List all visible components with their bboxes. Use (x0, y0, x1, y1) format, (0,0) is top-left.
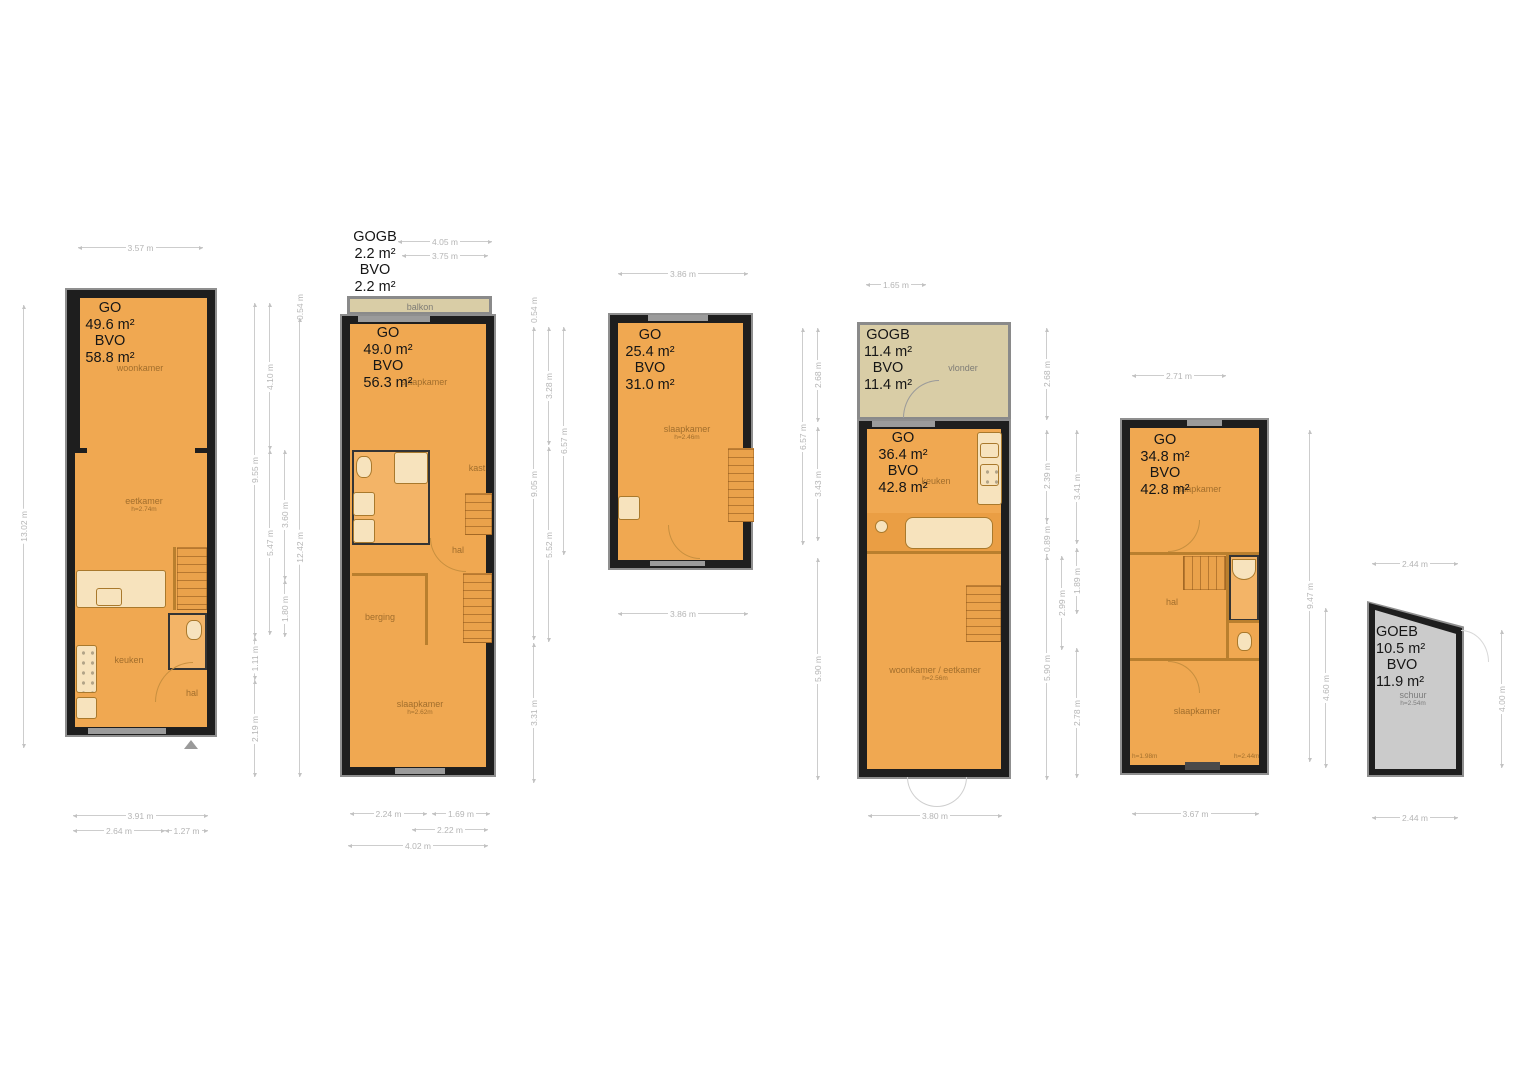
door-arc (907, 777, 937, 807)
toilet-fixture (356, 456, 372, 478)
washer-fixture (353, 519, 375, 543)
room-label: vlonder (948, 363, 978, 373)
dimension: 1.65 m (866, 279, 926, 290)
room-label: balkon (407, 302, 434, 312)
area-label: GO 25.4 m² BVO 31.0 m² (622, 327, 678, 393)
area-label-line: GO (81, 300, 139, 317)
area-label-line: 36.4 m² (875, 447, 931, 464)
area-label-line: GOEB (1376, 624, 1428, 641)
area-label-line: 42.8 m² (875, 480, 931, 497)
area-label: GO 49.0 m² BVO 56.3 m² (360, 325, 416, 391)
area-label-line: BVO (81, 333, 139, 350)
dimension: 2.78 m (1071, 648, 1082, 778)
dimension: 9.05 m (528, 327, 539, 640)
room-label: kast (469, 463, 486, 473)
window (872, 421, 935, 427)
dimension: 0.54 m (528, 298, 539, 322)
dimension: 2.68 m (812, 328, 823, 422)
door-arc (1461, 630, 1489, 662)
dimension: 2.99 m (1056, 556, 1067, 650)
entrance-marker-icon (184, 740, 198, 749)
area-label-line: BVO (360, 358, 416, 375)
area-label-line: 11.4 m² (862, 344, 914, 361)
dimension: 5.90 m (1041, 556, 1052, 780)
dimension: 4.05 m (398, 236, 492, 247)
area-label-line: 2.2 m² (350, 279, 400, 296)
dimension: 2.44 m (1372, 812, 1458, 823)
area-label-line: 49.6 m² (81, 317, 139, 334)
room-label: hal (1166, 597, 1178, 607)
area-label-line: 11.9 m² (1376, 674, 1428, 691)
stairs (728, 448, 754, 522)
partition-wall (1130, 658, 1259, 661)
dimension: 3.31 m (528, 643, 539, 783)
shed-area-label: GOEB 10.5 m² BVO 11.9 m² (1376, 624, 1428, 690)
area-label-line: GO (1136, 432, 1194, 449)
dimension: 2.68 m (1041, 328, 1052, 420)
area-label-line: BVO (1376, 657, 1428, 674)
dimension: 2.22 m (412, 824, 488, 835)
dimension: 1.69 m (432, 808, 490, 819)
floorplan-canvas: 3.57 m 13.02 m 9.55 m 1.11 m 2.19 m 4.10… (0, 0, 1527, 1080)
area-label: GO 49.6 m² BVO 58.8 m² (81, 300, 139, 366)
partition-wall (1229, 620, 1259, 623)
dimension: 3.67 m (1132, 808, 1259, 819)
room-label: berging (365, 612, 395, 622)
partition-wall (173, 547, 176, 610)
dimension: 0.54 m (294, 296, 305, 318)
dimension: 0.89 m (1041, 522, 1052, 556)
dimension: 3.60 m (279, 450, 290, 580)
area-label-line: 56.3 m² (360, 375, 416, 392)
bathtub-fixture (905, 517, 993, 549)
dimension: 1.80 m (279, 580, 290, 637)
area-label: GO 36.4 m² BVO 42.8 m² (875, 430, 931, 496)
washer-fixture (353, 492, 375, 516)
toilet-fixture (186, 620, 202, 640)
dimension: 3.43 m (812, 427, 823, 541)
dimension: 4.02 m (348, 840, 488, 851)
room-label: woonkamer / eetkamerh=2.56m (889, 665, 981, 682)
area-label-line: 25.4 m² (622, 344, 678, 361)
height-note: h=2.44m (1234, 753, 1259, 760)
partition-wall (867, 551, 1001, 554)
wall-segment (75, 448, 87, 453)
door-opening (1185, 762, 1220, 770)
dimension: 4.10 m (264, 303, 275, 450)
dimension: 3.41 m (1071, 430, 1082, 544)
area-label-line: GO (360, 325, 416, 342)
area-label-line: 11.4 m² (862, 377, 914, 394)
dimension: 3.57 m (78, 242, 203, 253)
window (358, 316, 430, 322)
area-label: GO 34.8 m² BVO 42.8 m² (1136, 432, 1194, 498)
area-label-line: 58.8 m² (81, 350, 139, 367)
dimension: 1.89 m (1071, 548, 1082, 614)
area-label-line: 2.2 m² (350, 246, 400, 263)
room-label: slaapkamer (1174, 706, 1221, 716)
shower-fixture (1232, 559, 1256, 580)
dimension: 1.11 m (249, 637, 260, 680)
partition-wall (352, 573, 428, 576)
stairs (465, 493, 492, 535)
dimension: 4.00 m (1496, 630, 1507, 768)
dimension: 2.39 m (1041, 430, 1052, 522)
area-label-line: 34.8 m² (1136, 449, 1194, 466)
dimension: 1.27 m (165, 825, 208, 836)
area-label-line: GOGB (350, 229, 400, 246)
dimension: 3.86 m (618, 268, 748, 279)
dimension: 5.90 m (812, 558, 823, 780)
area-label-line: BVO (350, 262, 400, 279)
dimension: 3.75 m (402, 250, 488, 261)
window (650, 561, 705, 566)
window (648, 315, 708, 321)
room-label: schuurh=2.54m (1399, 690, 1426, 707)
area-label-line: GO (622, 327, 678, 344)
area-label-line: BVO (875, 463, 931, 480)
dimension: 2.71 m (1132, 370, 1226, 381)
dimension: 3.80 m (868, 810, 1002, 821)
stairs (966, 585, 1001, 642)
window (1187, 420, 1222, 426)
wall-segment (75, 298, 80, 450)
room-label: slaapkamerh=2.46m (664, 424, 711, 441)
area-label-line: 10.5 m² (1376, 641, 1428, 658)
area-label-line: BVO (1136, 465, 1194, 482)
dimension: 3.28 m (543, 327, 554, 445)
area-label-line: BVO (622, 360, 678, 377)
room-label: hal (186, 688, 198, 698)
stove-fixture (980, 464, 999, 486)
dimension: 2.44 m (1372, 558, 1458, 569)
dimension: 12.42 m (294, 318, 305, 777)
window (88, 728, 166, 734)
partition-wall (425, 573, 428, 645)
dimension: 2.24 m (350, 808, 427, 819)
area-label-line: GOGB (862, 327, 914, 344)
dimension: 6.57 m (558, 327, 569, 555)
deck-area-label: GOGB 11.4 m² BVO 11.4 m² (862, 327, 914, 393)
dimension: 13.02 m (18, 305, 29, 748)
dimension: 9.47 m (1304, 430, 1315, 762)
dimension: 2.19 m (249, 680, 260, 777)
shower-fixture (394, 452, 428, 484)
dimension: 3.86 m (618, 608, 748, 619)
dimension: 9.55 m (249, 303, 260, 637)
dimension: 4.60 m (1320, 608, 1331, 768)
balcony-area-label: GOGB 2.2 m² BVO 2.2 m² (350, 229, 400, 295)
dimension: 5.47 m (264, 450, 275, 635)
height-note: h=1.98m (1132, 753, 1157, 760)
sink-fixture (875, 520, 888, 533)
closet-fixture (618, 496, 640, 520)
toilet-fixture (1237, 632, 1252, 651)
appliance-fixture (76, 697, 97, 719)
dimension: 3.91 m (73, 810, 208, 821)
sink-fixture (980, 443, 999, 458)
wall-segment (195, 448, 207, 453)
door-arc (937, 777, 967, 807)
room-label: slaapkamerh=2.62m (397, 699, 444, 716)
window (395, 768, 445, 774)
stove-fixture (76, 645, 97, 693)
area-label-line: 31.0 m² (622, 377, 678, 394)
room-label: hal (452, 545, 464, 555)
stairs (177, 547, 207, 610)
area-label-line: GO (875, 430, 931, 447)
dimension: 5.52 m (543, 447, 554, 642)
sink-fixture (96, 588, 122, 606)
area-label-line: 49.0 m² (360, 342, 416, 359)
dimension: 2.64 m (73, 825, 165, 836)
stairs (1183, 556, 1226, 590)
area-label-line: 42.8 m² (1136, 482, 1194, 499)
room-label: keuken (114, 655, 143, 665)
stairs (463, 573, 492, 643)
dimension: 6.57 m (797, 328, 808, 545)
room-label: eetkamerh=2.74m (125, 496, 163, 513)
area-label-line: BVO (862, 360, 914, 377)
